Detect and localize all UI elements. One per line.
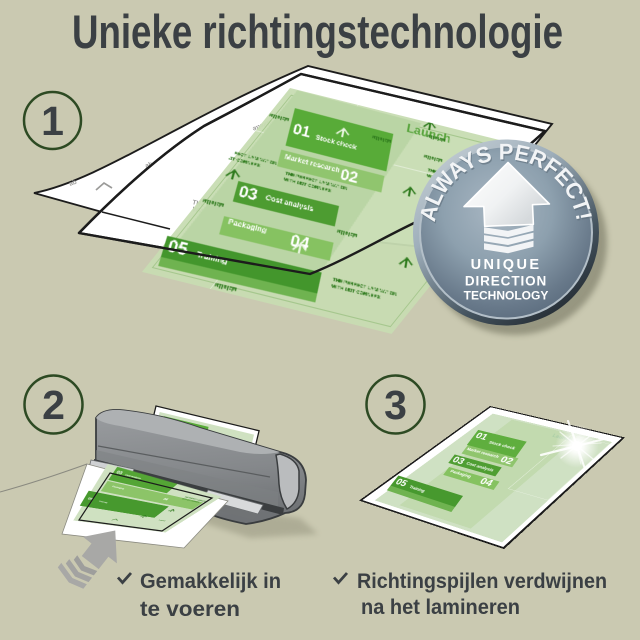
svg-text:DIRECTION: DIRECTION	[465, 274, 547, 289]
svg-text:TECHNOLOGY: TECHNOLOGY	[464, 289, 549, 303]
svg-text:UNIQUE: UNIQUE	[471, 257, 542, 273]
